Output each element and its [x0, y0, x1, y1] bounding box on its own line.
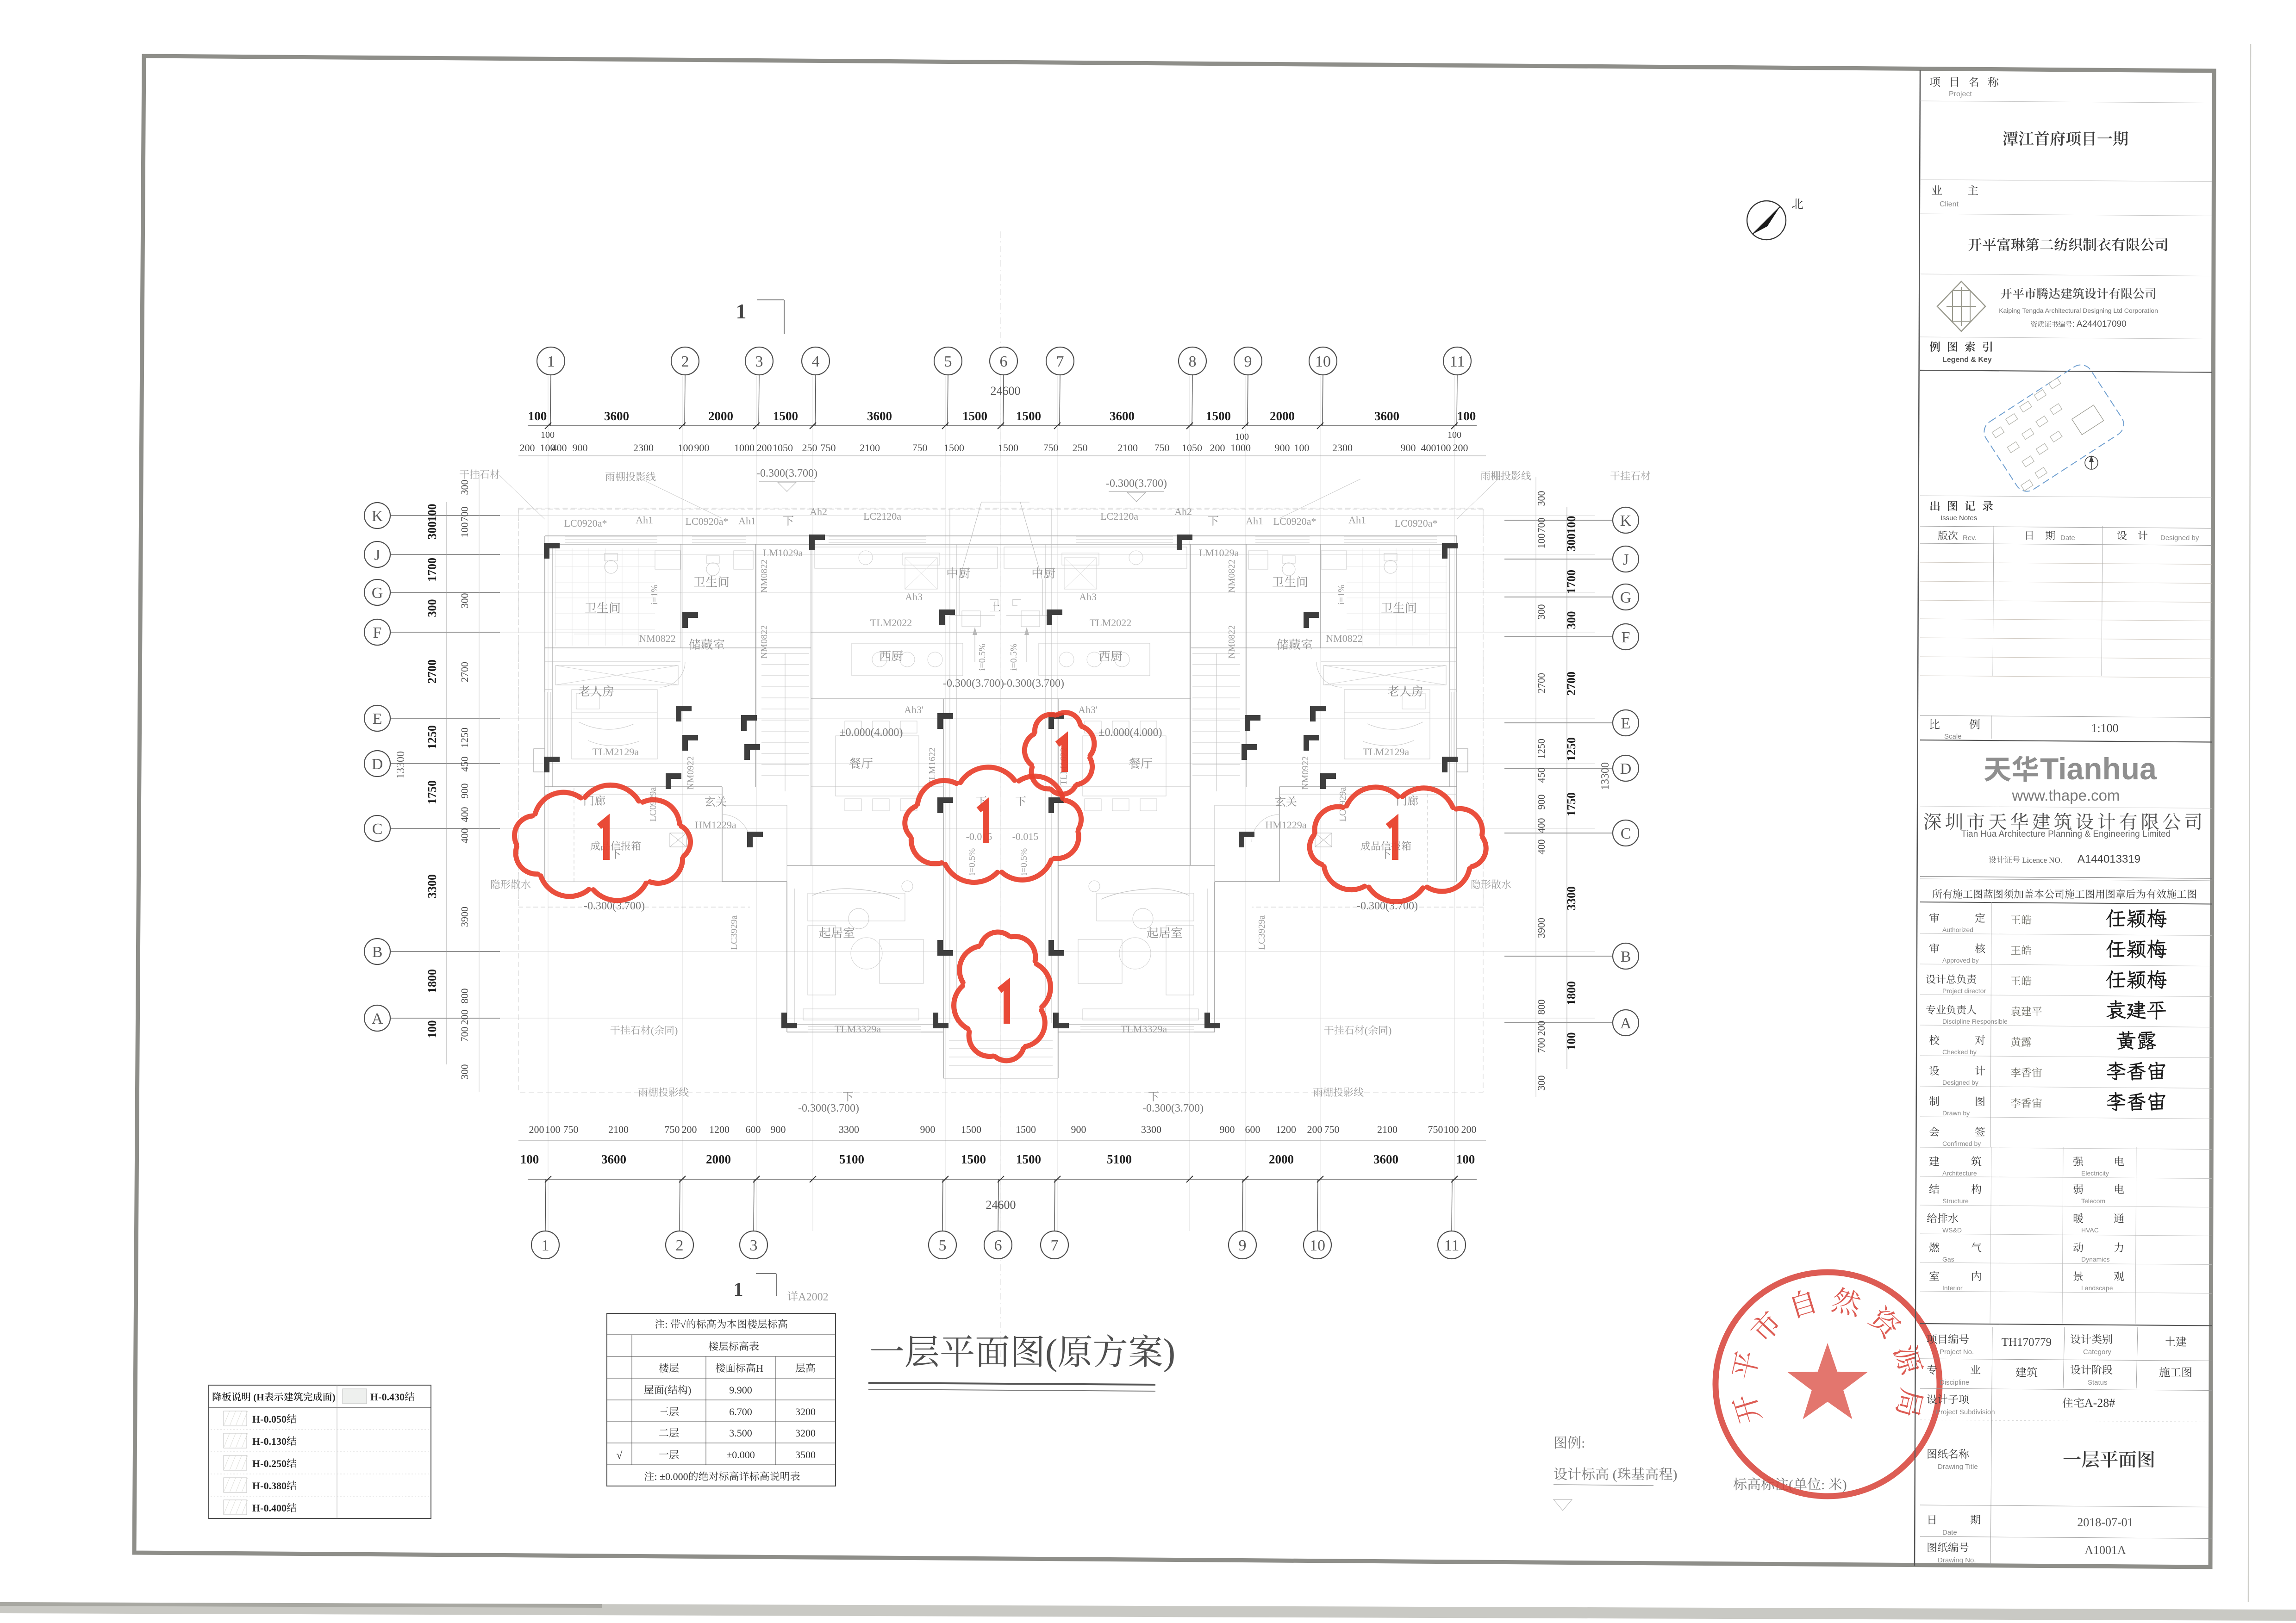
svg-text:www.thape.com: www.thape.com [2012, 787, 2120, 804]
svg-text:1800: 1800 [425, 969, 439, 993]
svg-text:900: 900 [573, 442, 588, 454]
svg-text:H-0.130: H-0.130 [252, 1436, 287, 1447]
svg-text:LC0920a*: LC0920a* [1273, 516, 1316, 527]
svg-text:Ah2: Ah2 [1174, 506, 1192, 517]
svg-text:1500: 1500 [1016, 409, 1041, 423]
svg-text:2: 2 [681, 353, 689, 370]
svg-text:HVAC: HVAC [2081, 1226, 2099, 1234]
svg-text:2700: 2700 [459, 662, 470, 682]
svg-text:2100: 2100 [860, 442, 880, 454]
svg-text:1500: 1500 [944, 442, 964, 454]
svg-text:WS&D: WS&D [1942, 1226, 1962, 1234]
svg-text:E: E [1621, 715, 1631, 732]
svg-text:100: 100 [1447, 430, 1461, 440]
svg-text:Checked by: Checked by [1942, 1048, 1977, 1056]
svg-text:750: 750 [912, 442, 928, 454]
svg-text:11: 11 [1450, 353, 1465, 370]
svg-text:200: 200 [529, 1124, 544, 1135]
svg-text:3600: 3600 [1374, 409, 1399, 423]
svg-text:700: 700 [1535, 518, 1547, 533]
svg-text:7: 7 [1051, 1237, 1059, 1254]
svg-text:100: 100 [520, 1152, 539, 1166]
svg-text:600: 600 [1245, 1124, 1260, 1135]
svg-text:TLM2022: TLM2022 [1090, 617, 1131, 628]
svg-text:TLM2129a: TLM2129a [593, 746, 639, 758]
svg-text:1: 1 [736, 299, 747, 323]
svg-text:900: 900 [920, 1124, 936, 1135]
svg-text:): ) [1673, 1467, 1678, 1482]
svg-text:Interior: Interior [1942, 1284, 1963, 1292]
svg-text:400: 400 [459, 807, 470, 822]
svg-text:TLM3329a: TLM3329a [1121, 1023, 1167, 1035]
svg-text:Ah3': Ah3' [1078, 704, 1098, 715]
svg-text:1000: 1000 [1230, 442, 1251, 454]
svg-text:-0.300(3.700): -0.300(3.700) [1003, 678, 1064, 690]
svg-text:Dynamics: Dynamics [2081, 1256, 2109, 1263]
svg-text:9: 9 [1239, 1237, 1247, 1254]
svg-text:900: 900 [1071, 1124, 1086, 1135]
svg-text:3300: 3300 [1141, 1124, 1161, 1135]
svg-text:J: J [1622, 551, 1628, 568]
svg-text:300: 300 [425, 599, 439, 617]
svg-text:200: 200 [1307, 1124, 1323, 1135]
svg-text:200: 200 [1453, 442, 1468, 454]
svg-text:LM1029a: LM1029a [1199, 547, 1239, 559]
svg-text:1050: 1050 [773, 442, 793, 454]
svg-text:Discipline: Discipline [1940, 1379, 1969, 1387]
svg-text:NM0822: NM0822 [1227, 560, 1237, 593]
svg-text:1500: 1500 [1016, 1152, 1041, 1166]
svg-text:100: 100 [1565, 1032, 1578, 1051]
svg-text::: : [1821, 1477, 1828, 1492]
svg-text:LC0920a*: LC0920a* [686, 516, 729, 527]
svg-text:Designed by: Designed by [1942, 1079, 1978, 1086]
svg-text:LM1029a: LM1029a [763, 547, 803, 559]
svg-text:NM0922: NM0922 [686, 756, 696, 790]
svg-text:Licence NO.: Licence NO. [2020, 856, 2062, 864]
svg-text:: A244017090: : A244017090 [2072, 319, 2126, 329]
svg-text:Ah2: Ah2 [810, 506, 827, 517]
svg-text:: ±0.000: : ±0.000 [654, 1471, 688, 1482]
svg-text:300: 300 [459, 1064, 470, 1080]
svg-text:HM1229a: HM1229a [695, 819, 736, 831]
svg-text:3300: 3300 [425, 874, 439, 898]
svg-text:1250: 1250 [1565, 737, 1578, 761]
svg-text:Client: Client [1940, 200, 1959, 208]
svg-text:5100: 5100 [1107, 1152, 1132, 1166]
svg-text:3600: 3600 [867, 409, 892, 423]
svg-text:3200: 3200 [795, 1427, 816, 1439]
svg-text:1050: 1050 [1182, 442, 1202, 454]
svg-text:NM0822: NM0822 [759, 625, 769, 659]
svg-text:100: 100 [1444, 1124, 1459, 1135]
svg-text:(: ( [664, 1384, 668, 1396]
svg-text:Telecom: Telecom [2081, 1197, 2105, 1205]
svg-text:3300: 3300 [1565, 886, 1578, 910]
svg-text:300: 300 [1535, 491, 1547, 506]
svg-text:Structure: Structure [1942, 1197, 1969, 1205]
svg-text:K: K [1620, 512, 1632, 529]
svg-text:Ah3: Ah3 [1079, 591, 1097, 603]
svg-text:2000: 2000 [1269, 1152, 1294, 1166]
svg-text:3500: 3500 [795, 1449, 816, 1461]
svg-text:100: 100 [545, 1124, 561, 1135]
svg-text:Ah3: Ah3 [905, 591, 923, 603]
svg-text:1500: 1500 [998, 442, 1018, 454]
svg-text:11: 11 [1444, 1237, 1460, 1254]
svg-text:Designed by: Designed by [2160, 534, 2199, 542]
svg-text:Ah1: Ah1 [1246, 515, 1263, 527]
svg-text:300: 300 [1565, 534, 1578, 552]
svg-text:7: 7 [1056, 353, 1064, 370]
svg-text:i=0.5%: i=0.5% [1019, 848, 1029, 876]
svg-text:-0.300(3.700): -0.300(3.700) [1142, 1102, 1204, 1114]
svg-text:200: 200 [682, 1124, 697, 1135]
svg-text:G: G [1620, 589, 1632, 606]
svg-text:450: 450 [1535, 768, 1547, 783]
svg-text:LC2120a: LC2120a [1100, 510, 1138, 522]
svg-text:Category: Category [2083, 1348, 2111, 1356]
svg-text:2018-07-01: 2018-07-01 [2077, 1516, 2133, 1529]
svg-text:3600: 3600 [604, 409, 629, 423]
svg-text:400: 400 [1421, 442, 1436, 454]
svg-text:TH170779: TH170779 [2002, 1336, 2052, 1349]
svg-text:100: 100 [1457, 409, 1476, 423]
svg-text:750: 750 [1324, 1124, 1340, 1135]
svg-text:TLM2129a: TLM2129a [1363, 746, 1409, 758]
svg-text:±0.000: ±0.000 [726, 1449, 755, 1461]
svg-text:Date: Date [1942, 1529, 1957, 1536]
svg-text:5100: 5100 [839, 1152, 864, 1166]
svg-text:1750: 1750 [425, 780, 439, 804]
svg-text:Rev.: Rev. [1963, 534, 1977, 542]
svg-text:): ) [674, 1025, 678, 1036]
svg-text:A: A [1620, 1015, 1632, 1032]
svg-text:1500: 1500 [961, 1124, 981, 1135]
svg-text:1700: 1700 [1565, 570, 1578, 594]
svg-text:3900: 3900 [1535, 918, 1547, 938]
svg-text:1250: 1250 [459, 728, 470, 748]
svg-text:A1001A: A1001A [2084, 1543, 2126, 1557]
svg-text:TLM3329a: TLM3329a [835, 1023, 881, 1035]
svg-text:H-0.380: H-0.380 [252, 1480, 287, 1492]
svg-text:10: 10 [1310, 1237, 1325, 1254]
svg-text:13300: 13300 [1599, 762, 1611, 790]
svg-text:1500: 1500 [1206, 409, 1231, 423]
svg-text:NM0822: NM0822 [759, 560, 769, 593]
svg-text:): ) [1163, 1332, 1176, 1373]
svg-text:24600: 24600 [986, 1198, 1016, 1212]
svg-text:Tian Hua Architecture Planning: Tian Hua Architecture Planning & Enginee… [1961, 829, 2171, 839]
svg-text:300: 300 [459, 593, 470, 609]
svg-text:F: F [1622, 629, 1630, 646]
svg-text:100: 100 [528, 409, 547, 423]
svg-text:): ) [688, 1384, 691, 1396]
svg-text:HM1229a: HM1229a [1265, 819, 1306, 831]
svg-text:-0.300(3.700): -0.300(3.700) [1106, 478, 1167, 490]
svg-text:H-0.430: H-0.430 [370, 1391, 405, 1403]
svg-text:H-0.250: H-0.250 [252, 1458, 287, 1469]
svg-text:900: 900 [1401, 442, 1416, 454]
svg-text:400: 400 [459, 828, 470, 844]
svg-text:200: 200 [757, 442, 772, 454]
svg-text:A2002: A2002 [798, 1291, 828, 1303]
svg-text:): ) [1842, 1477, 1847, 1492]
svg-text:2100: 2100 [1117, 442, 1138, 454]
svg-text:Gas: Gas [1942, 1256, 1954, 1263]
svg-text:3: 3 [750, 1237, 758, 1254]
svg-text:LC0920a*: LC0920a* [564, 517, 607, 529]
svg-text:H: H [756, 1362, 763, 1374]
svg-text:3200: 3200 [795, 1406, 816, 1418]
svg-text:H-0.400: H-0.400 [252, 1502, 287, 1514]
svg-text:Drawing Title: Drawing Title [1938, 1463, 1978, 1471]
svg-text:Drawing No.: Drawing No. [1938, 1556, 1976, 1564]
svg-text:450: 450 [459, 757, 470, 772]
svg-text:C: C [372, 821, 383, 838]
svg-text:100: 100 [1235, 432, 1249, 442]
svg-text:-0.300(3.700): -0.300(3.700) [798, 1102, 859, 1114]
svg-text:300: 300 [459, 480, 470, 495]
svg-text:250: 250 [802, 442, 817, 454]
svg-text:Landscape: Landscape [2081, 1284, 2113, 1292]
svg-text:i=0.5%: i=0.5% [1009, 644, 1019, 671]
svg-text:2: 2 [676, 1237, 684, 1254]
svg-text:3.500: 3.500 [729, 1427, 752, 1439]
svg-text:2000: 2000 [706, 1152, 731, 1166]
svg-text:Project Subdivision: Project Subdivision [1936, 1408, 1995, 1416]
svg-text:2100: 2100 [1377, 1124, 1398, 1135]
svg-text:900: 900 [1220, 1124, 1235, 1135]
svg-text:6.700: 6.700 [729, 1406, 752, 1418]
svg-text:Approved by: Approved by [1942, 957, 1979, 964]
svg-text:800: 800 [459, 989, 470, 1004]
svg-text:750: 750 [1428, 1124, 1443, 1135]
svg-text:Project director: Project director [1942, 987, 1986, 995]
svg-text:250: 250 [1073, 442, 1088, 454]
svg-text:2700: 2700 [1565, 672, 1578, 696]
svg-text:Architecture: Architecture [1942, 1169, 1977, 1177]
svg-text:±0.000(4.000): ±0.000(4.000) [1098, 727, 1162, 739]
svg-text:600: 600 [746, 1124, 761, 1135]
svg-text:10: 10 [1315, 353, 1331, 370]
svg-text:Issue Notes: Issue Notes [1940, 514, 1977, 522]
svg-text:±0.000(4.000): ±0.000(4.000) [839, 727, 903, 739]
svg-text:LC3929a: LC3929a [1257, 915, 1267, 950]
svg-text:i=1%: i=1% [1336, 585, 1347, 605]
svg-text:750: 750 [1154, 442, 1170, 454]
svg-text:700: 700 [459, 507, 470, 522]
svg-text:Ah1: Ah1 [636, 514, 653, 526]
svg-text:700: 700 [1535, 1038, 1547, 1053]
svg-text:2000: 2000 [1270, 409, 1295, 423]
svg-text:1250: 1250 [1535, 739, 1547, 759]
svg-text:1000: 1000 [734, 442, 755, 454]
svg-text:1800: 1800 [1565, 981, 1578, 1005]
svg-text:6: 6 [994, 1237, 1002, 1254]
svg-text:1700: 1700 [425, 558, 439, 582]
svg-text:1750: 1750 [1565, 792, 1578, 816]
svg-text:(: ( [651, 1025, 654, 1036]
svg-text:F: F [373, 624, 382, 641]
svg-text:13300: 13300 [395, 751, 407, 779]
svg-text:3600: 3600 [1110, 409, 1135, 423]
svg-text:1: 1 [547, 353, 555, 370]
svg-text:B: B [372, 944, 383, 961]
svg-text:): ) [332, 1392, 336, 1403]
svg-text:100: 100 [678, 442, 693, 454]
svg-text:400: 400 [1535, 839, 1547, 855]
svg-text:J: J [374, 547, 380, 564]
svg-text:100: 100 [425, 1020, 439, 1038]
svg-text:900: 900 [1275, 442, 1290, 454]
svg-text:√: √ [680, 1318, 686, 1330]
svg-text:i=1%: i=1% [649, 585, 660, 605]
svg-text:24600: 24600 [991, 384, 1021, 398]
svg-text:200: 200 [1535, 1021, 1547, 1036]
svg-text:9.900: 9.900 [729, 1384, 752, 1396]
svg-text:400: 400 [1535, 818, 1547, 833]
svg-text:2700: 2700 [425, 659, 439, 684]
svg-text:400: 400 [552, 442, 567, 454]
svg-text:2100: 2100 [608, 1124, 629, 1135]
svg-text:-0.015: -0.015 [1012, 831, 1039, 842]
svg-text:A: A [372, 1010, 383, 1027]
svg-text:NM0822: NM0822 [1227, 625, 1237, 659]
svg-text:LC0929a: LC0929a [648, 787, 658, 822]
svg-text:Ah1: Ah1 [738, 515, 756, 527]
svg-text:300: 300 [1535, 604, 1547, 620]
svg-text:E: E [373, 710, 382, 728]
svg-text:Project No.: Project No. [1940, 1348, 1974, 1356]
svg-text:100: 100 [1565, 516, 1578, 534]
svg-text:1: 1 [542, 1237, 549, 1254]
svg-text:2300: 2300 [633, 442, 654, 454]
svg-text:2700: 2700 [1535, 673, 1547, 693]
svg-text:Discipline Responsible: Discipline Responsible [1942, 1018, 2008, 1025]
svg-text:Legend & Key: Legend & Key [1942, 356, 1992, 364]
svg-text:Ah1: Ah1 [1348, 514, 1366, 526]
svg-text:700: 700 [459, 1027, 470, 1042]
svg-text:NM0922: NM0922 [1300, 756, 1310, 790]
svg-text:900: 900 [694, 442, 710, 454]
svg-text:(: ( [1365, 1025, 1368, 1036]
svg-text:750: 750 [1043, 442, 1059, 454]
svg-text:A-28#: A-28# [2084, 1396, 2115, 1410]
svg-text:200: 200 [520, 442, 535, 454]
svg-text:300: 300 [1535, 1076, 1547, 1091]
svg-text:100: 100 [1535, 534, 1547, 549]
svg-text:2000: 2000 [708, 409, 733, 423]
svg-text:Authorized: Authorized [1942, 926, 1973, 933]
svg-text:1500: 1500 [773, 409, 798, 423]
svg-text:NM0822: NM0822 [639, 633, 675, 644]
svg-text:750: 750 [665, 1124, 680, 1135]
svg-text:Electricity: Electricity [2081, 1169, 2109, 1177]
svg-text:200: 200 [1461, 1124, 1477, 1135]
svg-text:900: 900 [459, 784, 470, 799]
svg-text:Confirmed by: Confirmed by [1942, 1140, 1981, 1147]
svg-text:-0.300(3.700): -0.300(3.700) [943, 678, 1004, 690]
svg-text:LC2120a: LC2120a [863, 510, 901, 522]
svg-text:(: ( [1045, 1332, 1058, 1373]
svg-text:5: 5 [944, 353, 952, 370]
svg-text:K: K [372, 508, 383, 525]
svg-text:C: C [1621, 825, 1631, 842]
svg-text:100: 100 [1436, 442, 1451, 454]
svg-text:100: 100 [1456, 1152, 1475, 1166]
svg-text:): ) [1388, 1025, 1391, 1036]
svg-text:D: D [372, 756, 383, 773]
svg-text:1200: 1200 [709, 1124, 730, 1135]
svg-text:1:100: 1:100 [2091, 721, 2118, 735]
svg-text:100: 100 [1294, 442, 1310, 454]
svg-text:LC3929a: LC3929a [729, 915, 739, 950]
svg-text:2300: 2300 [1332, 442, 1353, 454]
svg-text:TLM2022: TLM2022 [870, 617, 912, 628]
svg-text:D: D [1620, 760, 1632, 777]
svg-text:3300: 3300 [839, 1124, 859, 1135]
svg-text:8: 8 [1189, 353, 1197, 370]
svg-text:1250: 1250 [425, 725, 439, 749]
svg-text:5: 5 [939, 1237, 947, 1254]
svg-text:Project: Project [1949, 90, 1972, 98]
svg-text:3900: 3900 [459, 907, 470, 927]
svg-text:H-0.050: H-0.050 [252, 1413, 287, 1425]
svg-text:750: 750 [821, 442, 836, 454]
svg-text:300: 300 [1565, 611, 1578, 629]
svg-text:LC0920a*: LC0920a* [1395, 517, 1438, 529]
svg-text:750: 750 [563, 1124, 579, 1135]
svg-text:900: 900 [1535, 795, 1547, 810]
svg-text:1200: 1200 [1276, 1124, 1296, 1135]
svg-text:A144013319: A144013319 [2078, 853, 2140, 865]
svg-text:Ah3': Ah3' [904, 704, 923, 715]
svg-text:(: ( [1609, 1467, 1617, 1482]
svg-text:1500: 1500 [962, 409, 987, 423]
svg-text:100: 100 [459, 522, 470, 538]
svg-text::: : [665, 1318, 670, 1330]
svg-text:4: 4 [812, 353, 820, 370]
svg-text:i=0.5%: i=0.5% [977, 644, 987, 671]
svg-text:(H: (H [251, 1392, 264, 1403]
svg-text:3600: 3600 [601, 1152, 626, 1166]
svg-text:Date: Date [2060, 534, 2075, 542]
svg-text::: : [1581, 1436, 1585, 1451]
svg-text:100: 100 [425, 504, 439, 522]
svg-text:6: 6 [1000, 353, 1008, 370]
svg-text:Status: Status [2088, 1379, 2108, 1387]
svg-text:200: 200 [1210, 442, 1225, 454]
svg-text:1500: 1500 [1016, 1124, 1036, 1135]
svg-text:√: √ [616, 1449, 623, 1461]
svg-text:Tianhua: Tianhua [2040, 752, 2157, 786]
svg-text:200: 200 [459, 1010, 470, 1025]
svg-text:900: 900 [771, 1124, 786, 1135]
svg-text:3: 3 [755, 353, 763, 370]
svg-text:800: 800 [1535, 1000, 1547, 1015]
svg-text:NM0822: NM0822 [1326, 633, 1362, 644]
svg-text:Kaiping Tengda Architectural D: Kaiping Tengda Architectural Designing L… [1999, 307, 2158, 314]
svg-text:i=0.5%: i=0.5% [967, 848, 977, 876]
svg-text:100: 100 [541, 430, 555, 440]
svg-text:9: 9 [1244, 353, 1252, 370]
svg-text:B: B [1621, 948, 1631, 965]
svg-text:Scale: Scale [1944, 733, 1962, 740]
svg-text:1500: 1500 [961, 1152, 986, 1166]
svg-text:300: 300 [425, 522, 439, 540]
svg-text:-0.300(3.700): -0.300(3.700) [756, 467, 817, 479]
